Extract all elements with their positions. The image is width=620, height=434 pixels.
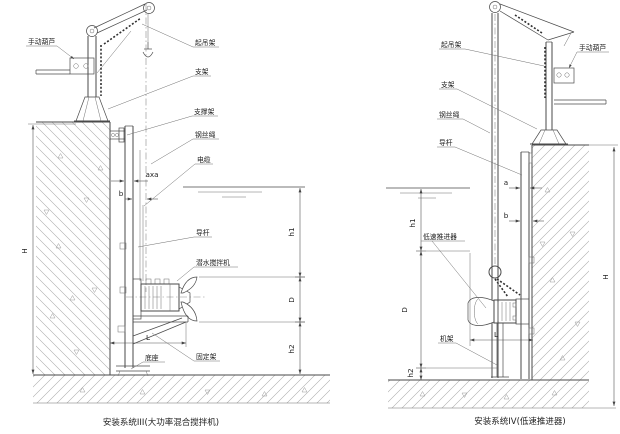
label-fixing-frame-left: 固定架 xyxy=(196,352,217,361)
left-wall xyxy=(36,122,110,375)
dim-L-right: L xyxy=(494,330,498,339)
technical-drawing: H h1 D h2 L axa b 手动葫芦 起吊架 xyxy=(0,0,620,434)
label-lifting-frame-left: 起吊架 xyxy=(195,39,216,47)
left-guide-rail xyxy=(110,126,150,376)
dim-H-left: H xyxy=(20,248,29,253)
label-machine-frame-right: 机架 xyxy=(440,334,454,343)
label-lifting-frame-right: 起吊架 xyxy=(441,41,462,49)
label-wire-rope-right: 钢丝绳 xyxy=(439,110,460,119)
left-crane xyxy=(36,3,155,122)
dim-b-right: b xyxy=(504,211,509,220)
propeller-blade-upper xyxy=(181,277,197,293)
dim-axa-left: axa xyxy=(145,170,158,179)
label-support-frame-left: 支撑架 xyxy=(194,107,215,116)
left-floor xyxy=(33,375,330,403)
right-water-surface xyxy=(386,188,470,198)
dim-H-right: H xyxy=(601,274,610,279)
label-support-right: 支架 xyxy=(441,80,455,89)
dim-D-right: D xyxy=(400,307,409,313)
label-wire-rope-left: 钢丝绳 xyxy=(195,130,216,139)
left-diagram: H h1 D h2 L axa b 手动葫芦 起吊架 xyxy=(20,3,330,429)
dim-h1-left: h1 xyxy=(287,227,296,236)
right-diagram: H h1 D h2 L a b 手动葫芦 起吊架 xyxy=(386,2,618,428)
drawing-canvas: H h1 D h2 L axa b 手动葫芦 起吊架 xyxy=(0,0,620,434)
label-base-left: 底座 xyxy=(145,353,159,362)
label-mixer-left: 潜水搅拌机 xyxy=(196,258,230,267)
float-ball xyxy=(489,266,501,278)
left-water-surface xyxy=(183,187,305,197)
dim-b-left: b xyxy=(119,189,124,198)
right-floor xyxy=(388,380,616,408)
label-thruster-right: 低速推进器 xyxy=(423,232,457,241)
hook-icon xyxy=(143,42,153,57)
label-manual-hoist-left: 手动葫芦 xyxy=(28,37,55,46)
label-manual-hoist-right: 手动葫芦 xyxy=(579,43,606,52)
left-support-bracket xyxy=(110,128,125,142)
left-hoist xyxy=(36,45,101,96)
left-mixer-seat xyxy=(133,316,188,344)
left-caption: 安装系统III(大功率混合搅拌机) xyxy=(103,417,219,428)
left-mixer xyxy=(133,277,197,344)
dim-L-left: L xyxy=(146,333,150,342)
dim-h1-right: h1 xyxy=(408,218,417,227)
dim-D-left: D xyxy=(287,297,296,303)
dim-h2-left: h2 xyxy=(287,344,296,353)
dim-h2-right: h2 xyxy=(406,368,415,377)
label-guide-rod-right: 导杆 xyxy=(439,138,453,147)
label-guide-rod-left: 导杆 xyxy=(196,228,210,237)
label-support-left: 支架 xyxy=(195,67,209,76)
dim-a-right: a xyxy=(504,178,508,187)
propeller-blade-lower xyxy=(181,302,197,321)
label-cable-left: 电缆 xyxy=(197,155,211,164)
right-caption: 安装系统IV(低速推进器) xyxy=(474,416,565,427)
right-wall xyxy=(532,145,589,380)
